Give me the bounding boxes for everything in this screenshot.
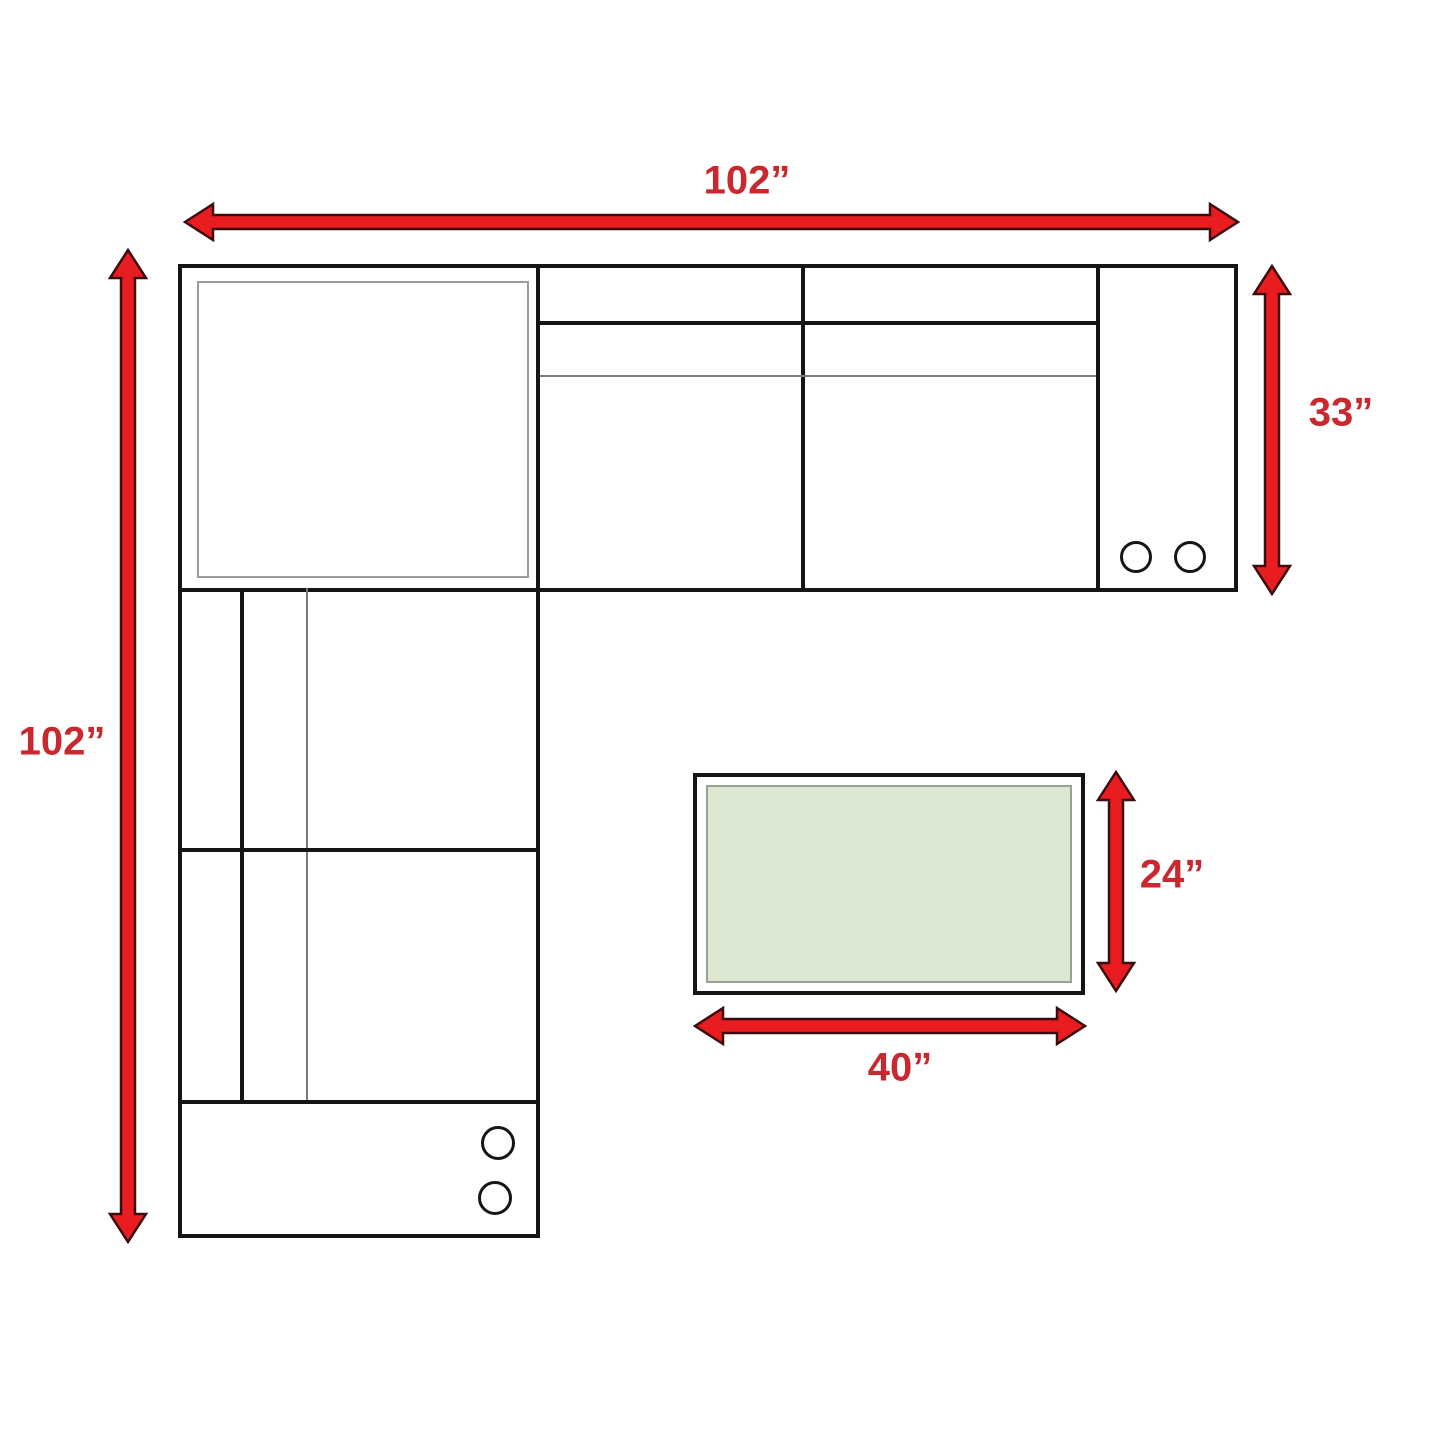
armrest-divider-right — [1096, 268, 1100, 588]
chaise-back-line-thin — [306, 588, 308, 1102]
cupholder-bottom-2 — [478, 1181, 512, 1215]
label-sofa-width: 102” — [704, 159, 791, 204]
arrow-ottoman-width — [695, 1000, 1085, 1052]
label-ottoman-depth: 24” — [1140, 853, 1205, 898]
corner-seat-cushion — [197, 281, 529, 578]
cupholder-bottom-1 — [481, 1126, 515, 1160]
chaise-seat-divider — [182, 848, 536, 852]
label-section-depth: 33” — [1309, 391, 1374, 436]
armrest-divider-bottom — [182, 1100, 536, 1104]
arrow-sofa-depth — [102, 250, 154, 1242]
backrest-line-thin — [540, 375, 1096, 377]
arrow-section-depth — [1246, 266, 1298, 594]
arrow-ottoman-depth — [1090, 772, 1142, 991]
dimension-diagram: 102” 102” 33” 24” 40” — [0, 0, 1445, 1445]
cupholder-right-2 — [1174, 541, 1206, 573]
cupholder-right-1 — [1120, 541, 1152, 573]
seat-divider-vertical — [801, 268, 805, 588]
chaise-back-line-thick — [240, 588, 244, 1102]
backrest-line-thick — [540, 321, 1096, 325]
label-ottoman-width: 40” — [868, 1046, 933, 1091]
ottoman-cushion — [706, 785, 1072, 983]
label-sofa-depth: 102” — [19, 720, 106, 765]
arrow-sofa-width — [185, 196, 1238, 248]
